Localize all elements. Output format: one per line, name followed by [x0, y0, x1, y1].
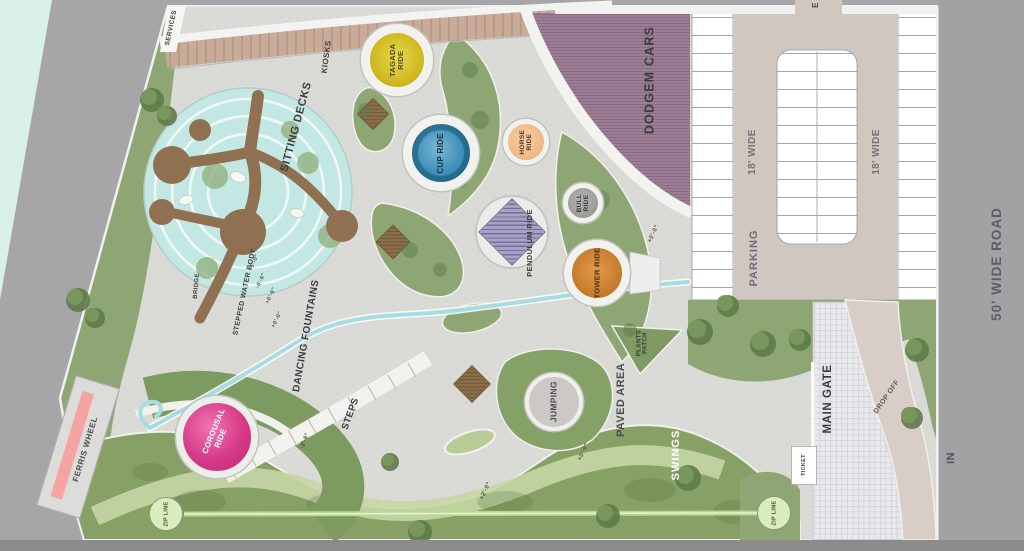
label-exit-e: E: [812, 2, 820, 8]
zip-line-label-b: ZIP LINE: [771, 501, 777, 526]
carousal-ride-circle: COROUSAL RIDE: [176, 396, 258, 478]
label-dodgem-cars: DODGEM CARS: [643, 26, 656, 134]
right-road-50ft: [939, 0, 1024, 551]
ticket-label: TICKET: [801, 455, 807, 477]
road-edge-line: [936, 6, 939, 540]
cup-ride-label: CUP RIDE: [437, 133, 446, 173]
label-aisle-left: 18' WIDE: [748, 129, 759, 175]
label-aisle-right: 18' WIDE: [872, 129, 883, 175]
tower-ride-label: TOWER RIDE: [593, 248, 601, 299]
label-paved-area: PAVED AREA: [616, 363, 628, 437]
pendulum-ride-platform: [478, 198, 546, 266]
zip-line-pad-b: ZIP LINE: [757, 496, 791, 530]
cup-ride-circle: CUP RIDE: [403, 115, 479, 191]
site-plan: TAGADA RIDE CUP RIDE HORSE RIDE BULL RID…: [0, 0, 1024, 551]
tagada-ride-circle: TAGADA RIDE: [361, 24, 433, 96]
bull-ride-circle: BULL RIDE: [563, 183, 603, 223]
zip-line: [184, 513, 758, 514]
ticket-booth: TICKET: [791, 446, 817, 485]
jumping-label: JUMPING: [549, 382, 558, 423]
zip-line-pad-a: ZIP LINE: [149, 497, 183, 531]
label-parking: PARKING: [749, 230, 761, 287]
horse-ride-label: HORSE RIDE: [519, 129, 533, 155]
label-plants-patch: PLANTS PATCH: [637, 328, 650, 358]
horse-ride-circle: HORSE RIDE: [503, 119, 549, 165]
label-pendulum-ride: PENDULUM RIDE: [526, 209, 534, 277]
jumping-circle: JUMPING: [525, 373, 583, 431]
label-main-gate: MAIN GATE: [822, 364, 834, 433]
tagada-ride-label: TAGADA RIDE: [389, 43, 406, 77]
zip-line-label-a: ZIP LINE: [163, 502, 169, 527]
bull-ride-label: BULL RIDE: [576, 191, 590, 215]
pendulum-ride-circle: [475, 195, 549, 269]
label-in: IN: [946, 452, 958, 464]
carousal-ride-label: COROUSAL RIDE: [201, 415, 232, 459]
bottom-road-band: [0, 540, 1024, 551]
tower-ramp: [630, 252, 660, 294]
label-road: 50' WIDE ROAD: [990, 207, 1004, 321]
label-swings: SWINGS: [671, 430, 683, 481]
tower-ride-circle: TOWER RIDE: [564, 240, 630, 306]
site-map-base: [0, 0, 1024, 551]
